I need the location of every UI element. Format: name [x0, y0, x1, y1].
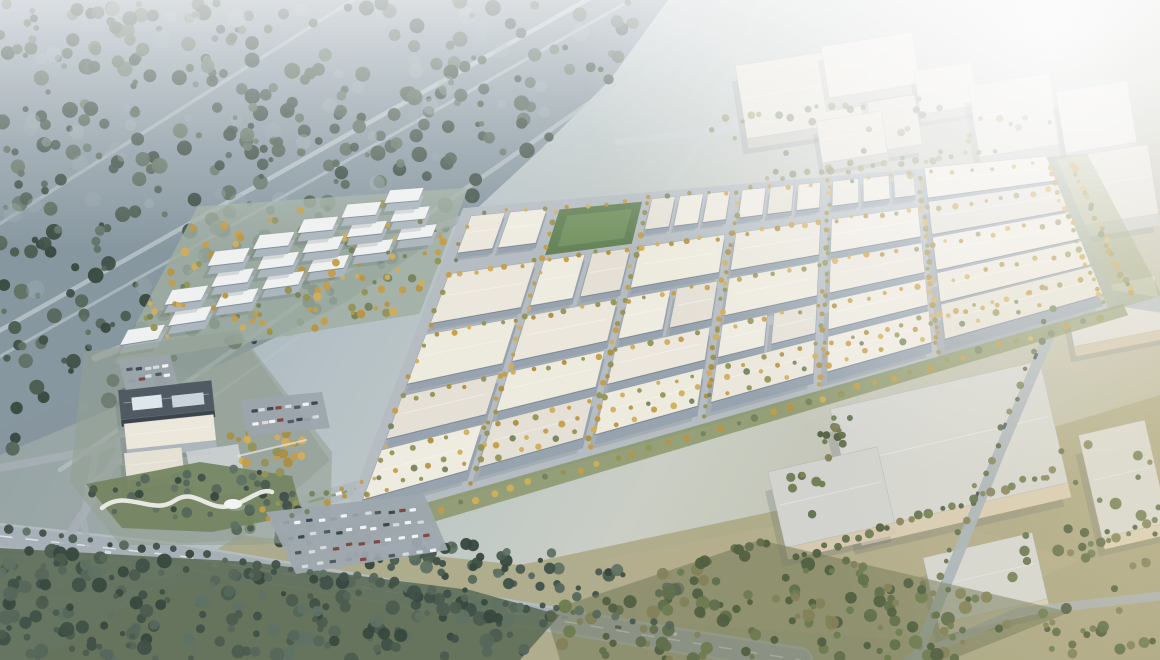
- rendering-canvas: [0, 0, 1160, 660]
- aerial-rendering-industrial-park: [0, 0, 1160, 660]
- atmosphere-overlay: [0, 0, 1160, 660]
- desaturation-veil: [0, 0, 1160, 660]
